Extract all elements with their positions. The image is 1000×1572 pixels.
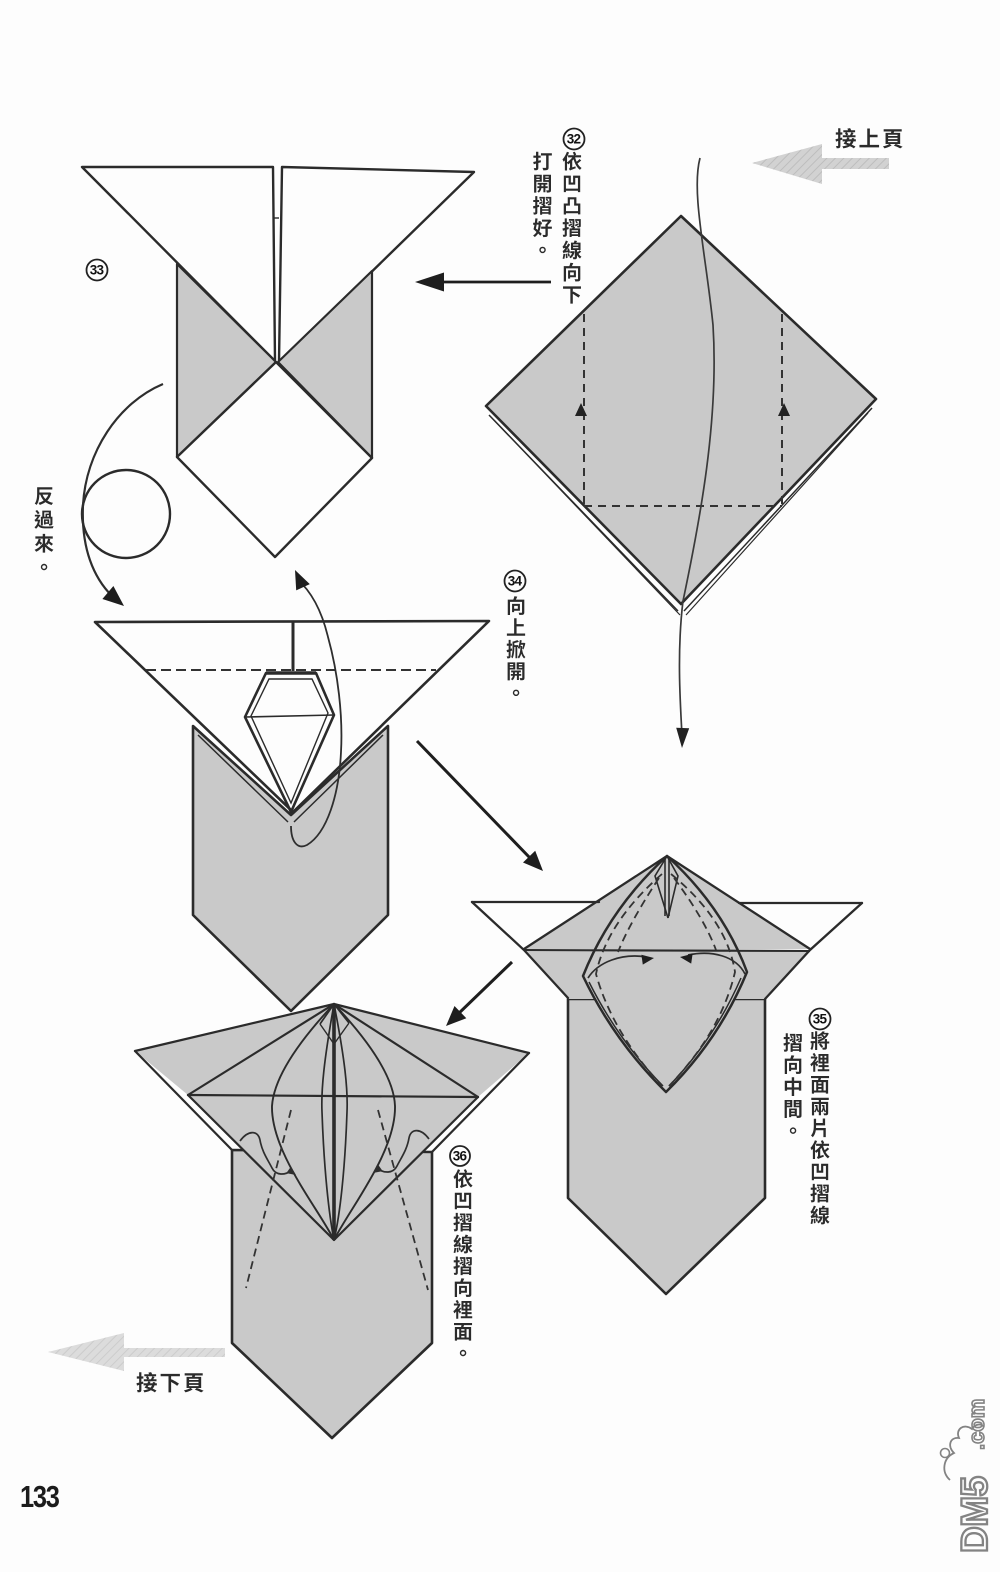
svg-text:DM5: DM5 — [954, 1476, 995, 1553]
svg-text:32: 32 — [567, 132, 581, 147]
svg-text:133: 133 — [20, 1480, 59, 1515]
svg-text:34: 34 — [508, 574, 523, 589]
svg-text:35: 35 — [813, 1012, 828, 1027]
svg-text:33: 33 — [90, 263, 105, 278]
svg-text:36: 36 — [453, 1149, 468, 1164]
